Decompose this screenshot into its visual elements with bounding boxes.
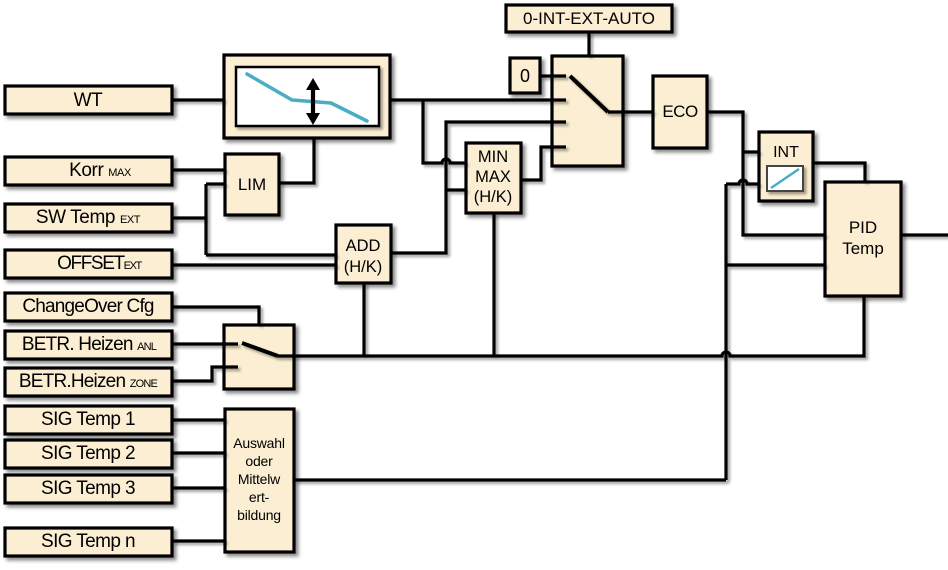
- svg-text:ECO: ECO: [662, 102, 698, 121]
- svg-text:ChangeOver Cfg: ChangeOver Cfg: [22, 296, 154, 317]
- svg-text:PID: PID: [849, 218, 877, 237]
- svg-text:SIG Temp 3: SIG Temp 3: [41, 478, 135, 499]
- svg-text:MAX: MAX: [475, 168, 511, 186]
- svg-text:SIG Temp n: SIG Temp n: [41, 531, 135, 552]
- svg-text:Auswahl: Auswahl: [233, 435, 285, 451]
- svg-text:0-INT-EXT-AUTO: 0-INT-EXT-AUTO: [523, 9, 655, 28]
- svg-text:MIN: MIN: [478, 148, 508, 166]
- svg-text:BETR. Heizen ANL: BETR. Heizen ANL: [22, 334, 157, 355]
- svg-text:ADD: ADD: [346, 237, 381, 255]
- svg-text:Mittelw: Mittelw: [238, 471, 281, 487]
- svg-text:bildung: bildung: [237, 507, 281, 523]
- svg-text:SIG Temp 1: SIG Temp 1: [41, 409, 135, 430]
- svg-text:oder: oder: [245, 453, 273, 469]
- svg-text:INT: INT: [773, 144, 799, 161]
- svg-text:WT: WT: [74, 90, 104, 111]
- svg-text:(H/K): (H/K): [344, 258, 383, 276]
- svg-text:SIG Temp 2: SIG Temp 2: [41, 443, 135, 464]
- svg-text:ert-: ert-: [249, 489, 270, 505]
- svg-text:LIM: LIM: [238, 175, 266, 194]
- svg-text:Temp: Temp: [842, 239, 884, 258]
- svg-text:0: 0: [520, 66, 530, 86]
- svg-text:(H/K): (H/K): [474, 188, 513, 206]
